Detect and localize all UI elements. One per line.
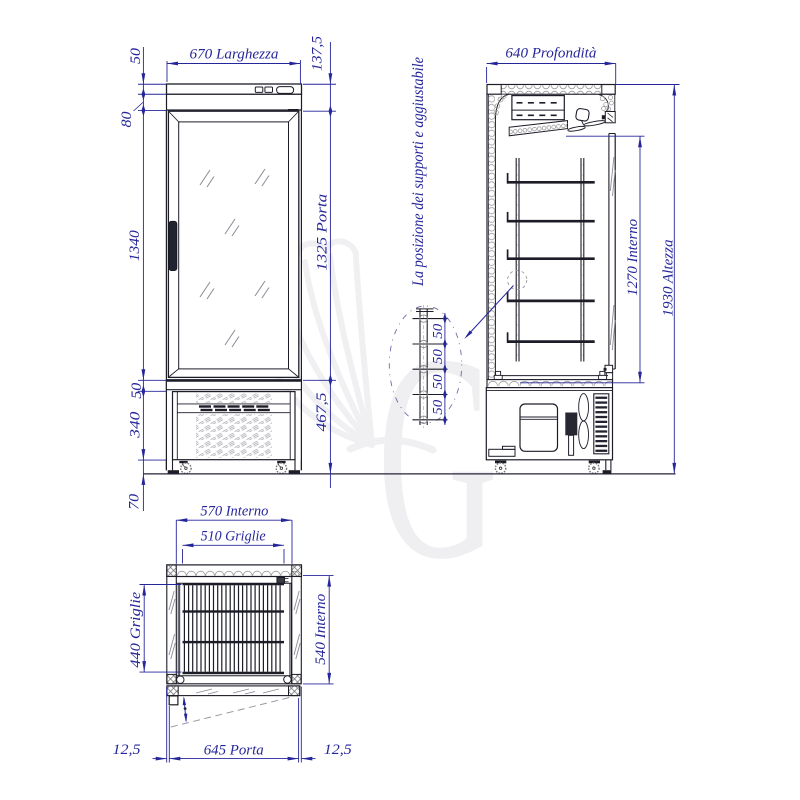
svg-text:340: 340 [127,411,143,439]
svg-text:440 Griglie: 440 Griglie [128,591,144,667]
svg-text:G: G [377,293,498,620]
svg-text:1325 Porta: 1325 Porta [314,194,330,271]
svg-text:1270 Interno: 1270 Interno [625,218,641,295]
svg-text:50: 50 [431,374,446,389]
svg-text:80: 80 [119,111,135,128]
svg-text:50: 50 [431,349,446,364]
svg-text:137,5: 137,5 [309,35,325,71]
svg-text:12,5: 12,5 [324,742,353,758]
svg-text:1930 Altezza: 1930 Altezza [660,240,676,317]
svg-text:12,5: 12,5 [113,742,142,758]
svg-text:50: 50 [128,47,144,64]
svg-text:La posizione dei supporti e ag: La posizione dei supporti e aggiustabile [410,57,427,287]
svg-text:467,5: 467,5 [314,392,330,432]
svg-text:670 Larghezza: 670 Larghezza [190,47,279,63]
svg-text:645 Porta: 645 Porta [204,742,264,758]
svg-text:1340: 1340 [127,230,143,262]
svg-text:50: 50 [431,324,446,339]
svg-text:540 Interno: 540 Interno [313,593,329,664]
svg-text:50: 50 [129,382,145,399]
svg-text:510 Griglie: 510 Griglie [201,528,266,544]
svg-text:640 Profondità: 640 Profondità [505,45,596,61]
svg-text:70: 70 [127,493,143,510]
svg-text:50: 50 [431,400,446,415]
svg-text:570 Interno: 570 Interno [200,504,268,520]
